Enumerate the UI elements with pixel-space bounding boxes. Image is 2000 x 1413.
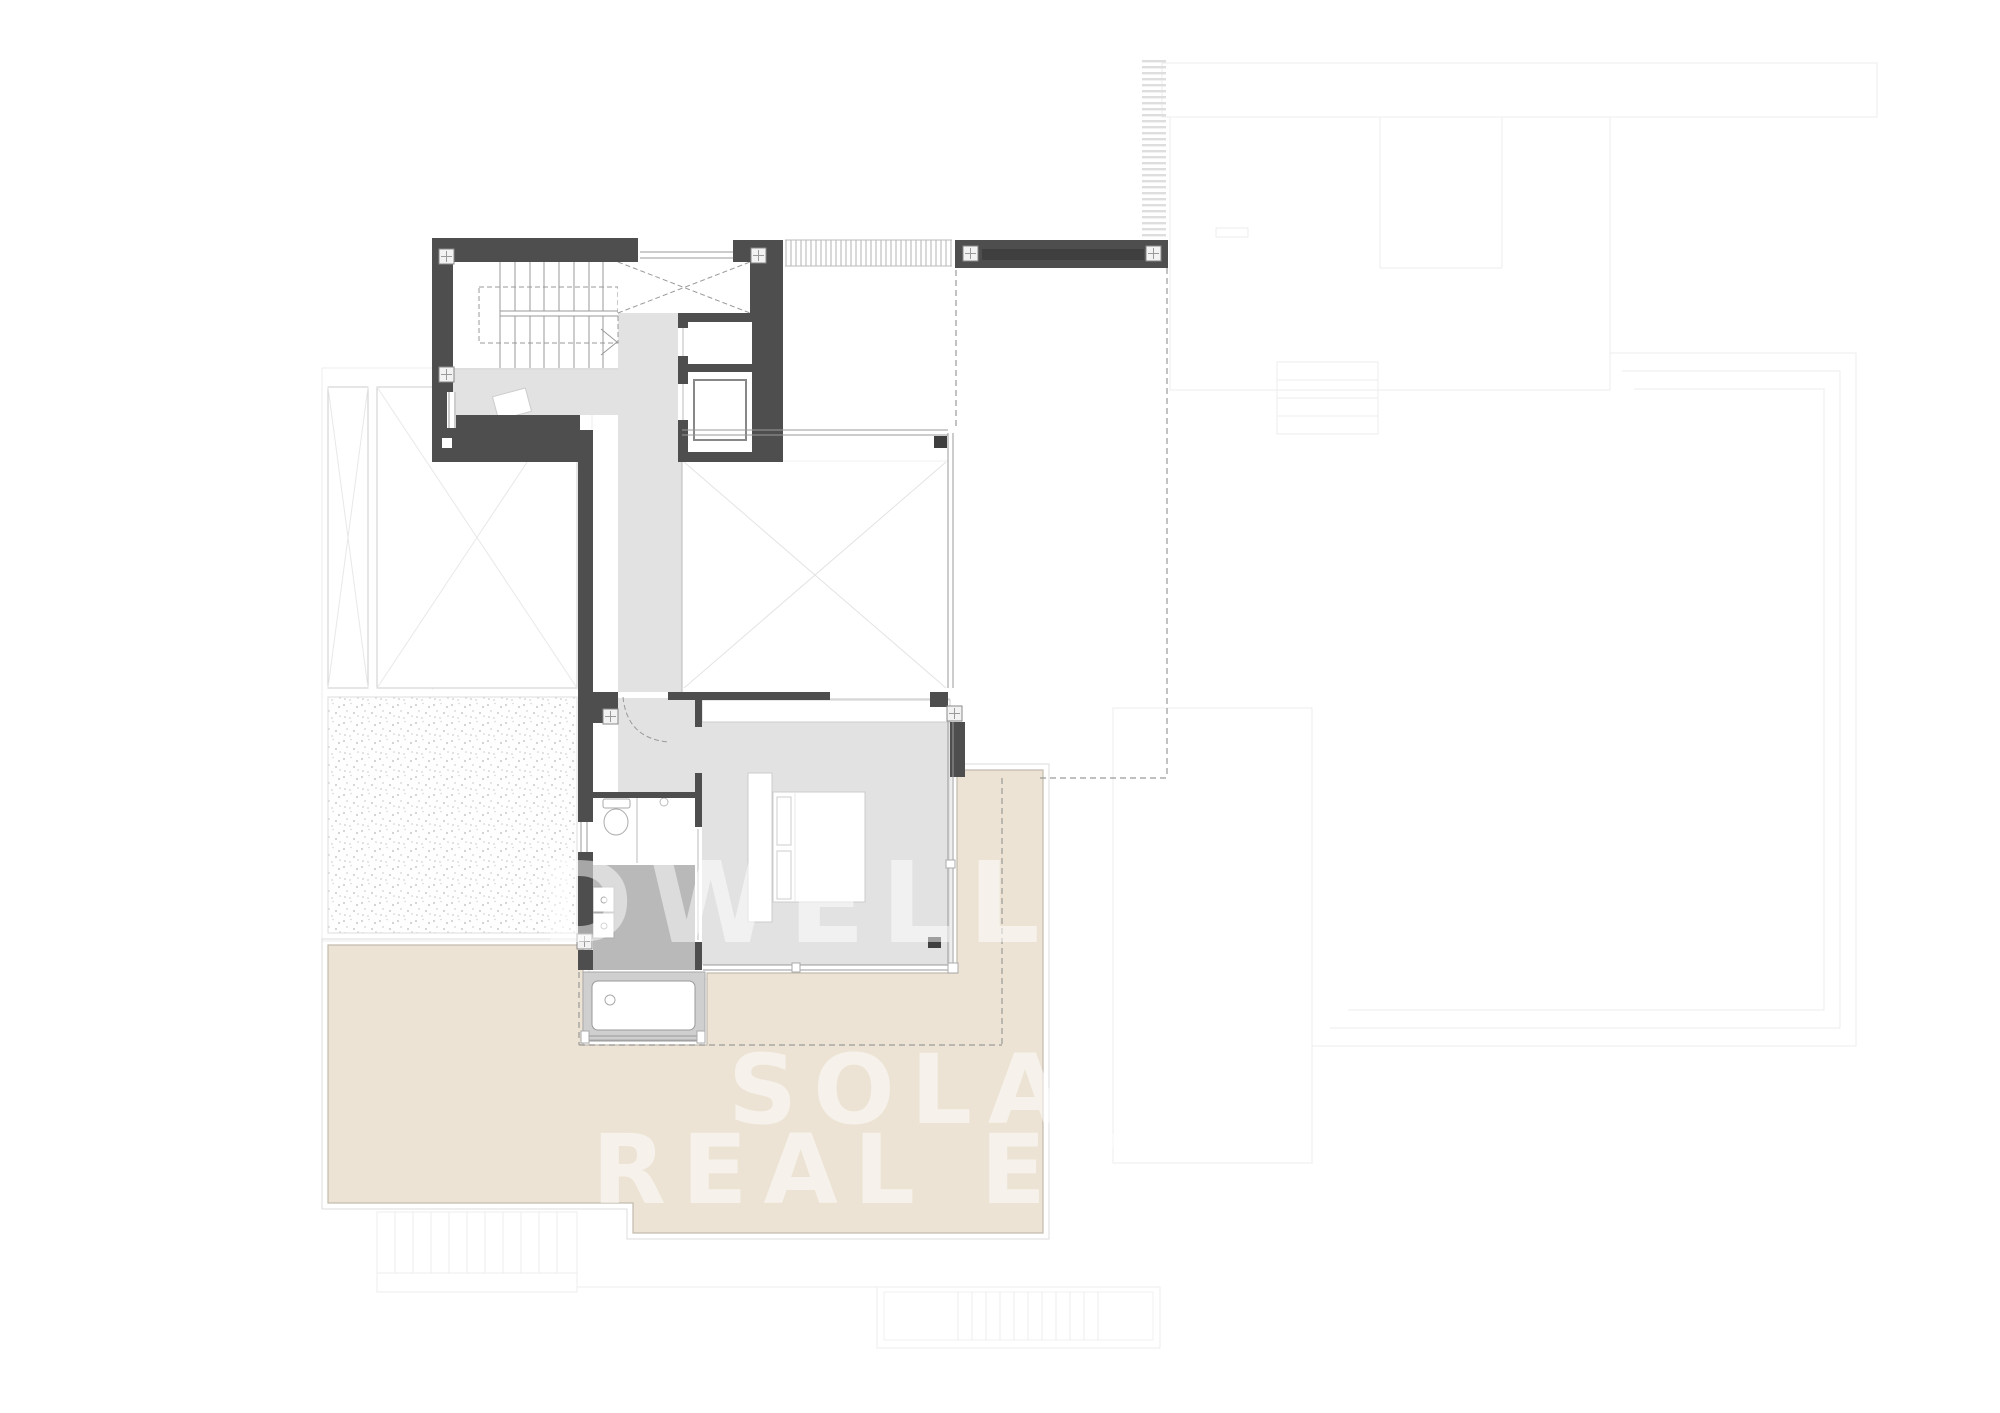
pergola-hatch (785, 240, 952, 266)
window-ledge (702, 700, 950, 722)
column-marker (751, 248, 766, 263)
skylight-narrow (328, 387, 368, 688)
double-height-void (682, 433, 948, 692)
stairwell-top-wall (432, 238, 638, 262)
elevator (678, 313, 783, 462)
stair-hatch-strip (1142, 60, 1166, 238)
bathtub (581, 972, 705, 1043)
corridor-floor (618, 313, 682, 692)
watermark-line-1: DWELL (540, 848, 1056, 960)
elevator-lobby (688, 322, 752, 364)
hallway-floor (453, 370, 618, 415)
toilet (603, 799, 630, 835)
column-marker (439, 367, 454, 382)
floor-plan: DWELL SOLA REAL ES (0, 0, 2000, 1413)
elevator-car (694, 380, 746, 440)
watermark-line-3: REAL ES (592, 1122, 1147, 1218)
staircase (453, 262, 618, 370)
void-corner-marker (934, 436, 947, 448)
column-marker (1146, 246, 1161, 261)
column-marker (963, 246, 978, 261)
stair-void (618, 262, 750, 313)
column-marker (439, 249, 454, 264)
west-wall (578, 462, 593, 692)
bedroom-top-wall (668, 692, 830, 700)
hall-corner-wall (432, 415, 593, 462)
bathroom-top-wall (592, 792, 695, 798)
column-marker (947, 706, 962, 721)
column-marker (603, 709, 618, 724)
pillow (777, 797, 791, 845)
